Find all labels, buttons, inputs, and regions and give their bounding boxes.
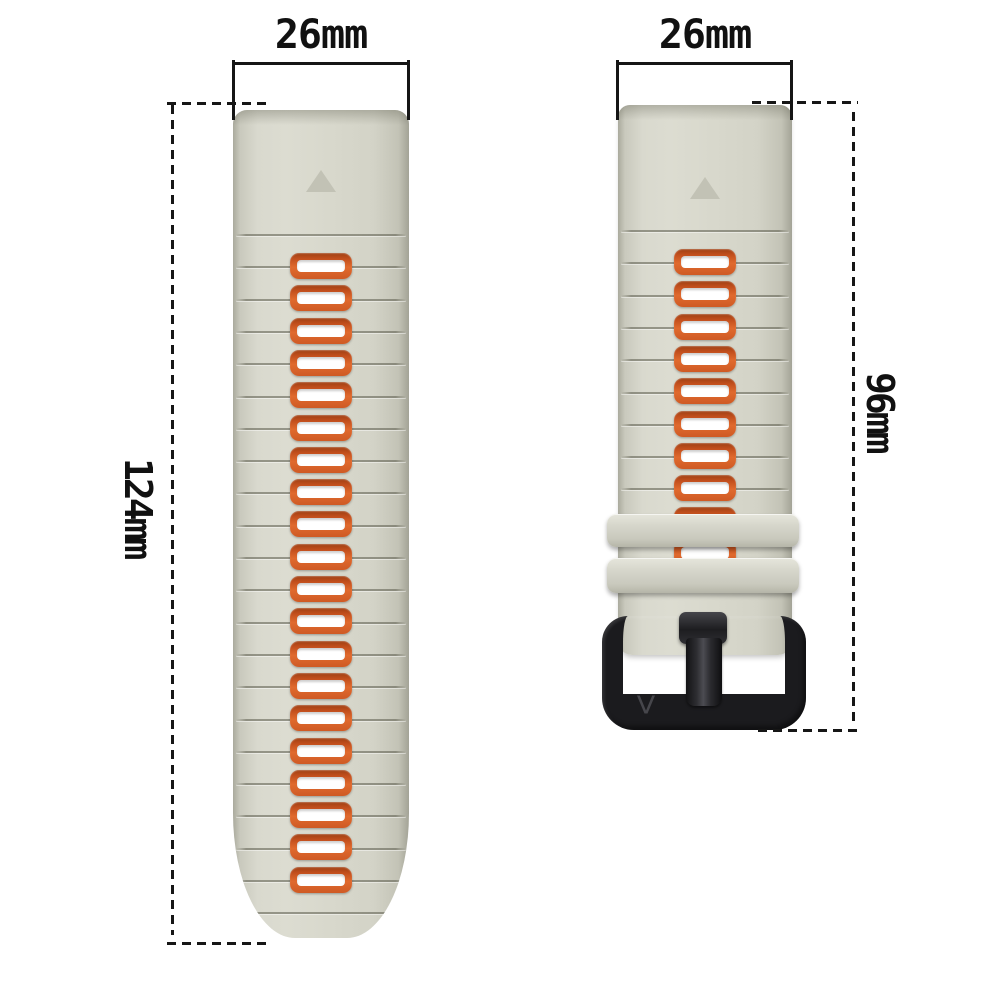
- strap-hole: [290, 576, 352, 602]
- strap-hole: [290, 834, 352, 860]
- strap-groove: [621, 230, 789, 232]
- strap-hole-center: [297, 680, 345, 692]
- strap-hole: [290, 608, 352, 634]
- dimension-tick: [616, 60, 619, 120]
- strap-hole: [674, 475, 736, 501]
- dashed-length-line-left: [171, 105, 174, 935]
- strap-hole-center: [297, 454, 345, 466]
- strap-hole-center: [681, 547, 729, 559]
- dimension-tick: [790, 60, 793, 120]
- strap-hole: [290, 318, 352, 344]
- strap-hole-center: [297, 389, 345, 401]
- strap-hole-center: [297, 874, 345, 886]
- strap-hole-center: [297, 357, 345, 369]
- left-strap-top-edge: [233, 110, 409, 125]
- strap-hole-center: [297, 325, 345, 337]
- strap-groove: [236, 234, 406, 236]
- strap-hole-center: [297, 777, 345, 789]
- strap-hole-center: [681, 418, 729, 430]
- strap-hole-center: [681, 353, 729, 365]
- strap-hole-center: [297, 422, 345, 434]
- strap-hole-center: [297, 809, 345, 821]
- strap-hole-center: [297, 518, 345, 530]
- dimension-tick: [407, 60, 410, 120]
- strap-hole: [674, 314, 736, 340]
- strap-hole-center: [681, 256, 729, 268]
- strap-hole-center: [297, 615, 345, 627]
- buckle-logo: V: [628, 691, 664, 720]
- strap-hole: [290, 673, 352, 699]
- strap-hole: [674, 411, 736, 437]
- triangle-marker-icon: [690, 177, 720, 199]
- left-strap: [233, 110, 409, 938]
- strap-hole: [674, 346, 736, 372]
- strap-hole: [290, 511, 352, 537]
- strap-hole: [674, 443, 736, 469]
- strap-hole: [290, 350, 352, 376]
- strap-hole: [290, 867, 352, 893]
- strap-hole-center: [297, 583, 345, 595]
- strap-hole-center: [681, 288, 729, 300]
- dimension-label-left-width: 26mm: [231, 12, 411, 58]
- dashed-extension-line: [167, 942, 268, 945]
- dimension-label-right-width: 26mm: [615, 12, 795, 58]
- strap-hole-center: [297, 841, 345, 853]
- dashed-extension-line: [758, 729, 858, 732]
- dashed-extension-line: [752, 101, 858, 104]
- strap-hole: [290, 479, 352, 505]
- product-dimension-diagram: V 26mm 26mm 124mm 96mm: [0, 0, 1000, 1000]
- strap-groove: [236, 912, 406, 914]
- strap-hole: [290, 447, 352, 473]
- strap-hole-center: [297, 260, 345, 272]
- strap-hole-center: [297, 486, 345, 498]
- dimension-label-left-length: 124mm: [116, 458, 160, 557]
- strap-hole: [290, 544, 352, 570]
- strap-hole-center: [681, 385, 729, 397]
- dimension-tick: [232, 60, 235, 120]
- strap-hole-center: [681, 482, 729, 494]
- strap-hole-center: [297, 292, 345, 304]
- dashed-length-line-right: [852, 112, 855, 724]
- strap-keeper-loop-1: [607, 514, 799, 547]
- strap-hole-center: [297, 712, 345, 724]
- strap-hole-center: [681, 450, 729, 462]
- strap-hole-center: [681, 321, 729, 333]
- dashed-extension-line: [167, 102, 268, 105]
- strap-hole: [290, 770, 352, 796]
- strap-hole-center: [297, 745, 345, 757]
- strap-hole: [674, 378, 736, 404]
- strap-hole: [290, 253, 352, 279]
- strap-hole: [290, 738, 352, 764]
- strap-hole: [290, 382, 352, 408]
- buckle-pin: [686, 638, 722, 706]
- dimension-line-left-width: [233, 62, 410, 65]
- strap-hole: [674, 281, 736, 307]
- strap-hole-center: [297, 648, 345, 660]
- strap-hole-center: [297, 551, 345, 563]
- dimension-line-right-width: [618, 62, 793, 65]
- strap-hole: [290, 802, 352, 828]
- strap-hole: [290, 415, 352, 441]
- strap-hole: [290, 285, 352, 311]
- triangle-marker-icon: [306, 170, 336, 192]
- dimension-label-right-length: 96mm: [858, 372, 902, 452]
- right-strap-top-edge: [618, 105, 792, 120]
- strap-hole: [290, 641, 352, 667]
- strap-hole: [290, 705, 352, 731]
- strap-hole: [674, 249, 736, 275]
- strap-keeper-loop-2: [607, 558, 799, 593]
